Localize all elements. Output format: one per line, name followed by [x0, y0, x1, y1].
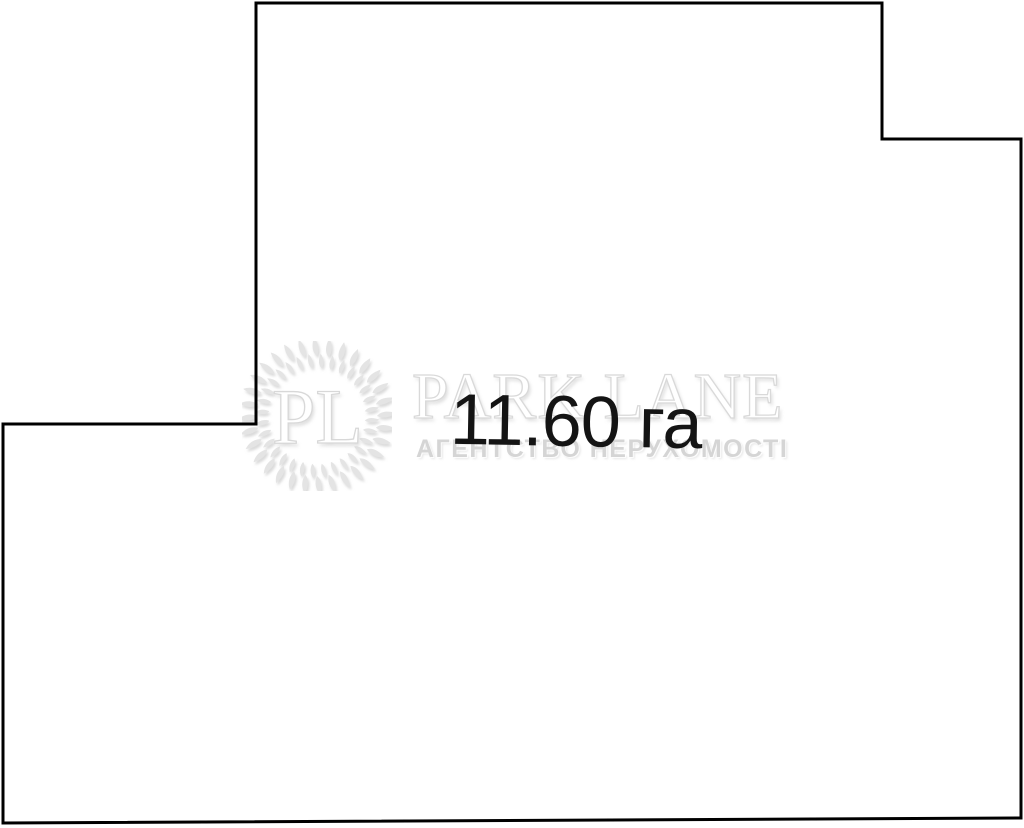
land-plot-diagram: PL PARK LANE АГЕНТСТВО НЕРУХОМОСТІ 11.60… — [0, 0, 1024, 828]
area-label: 11.60 га — [449, 384, 702, 460]
